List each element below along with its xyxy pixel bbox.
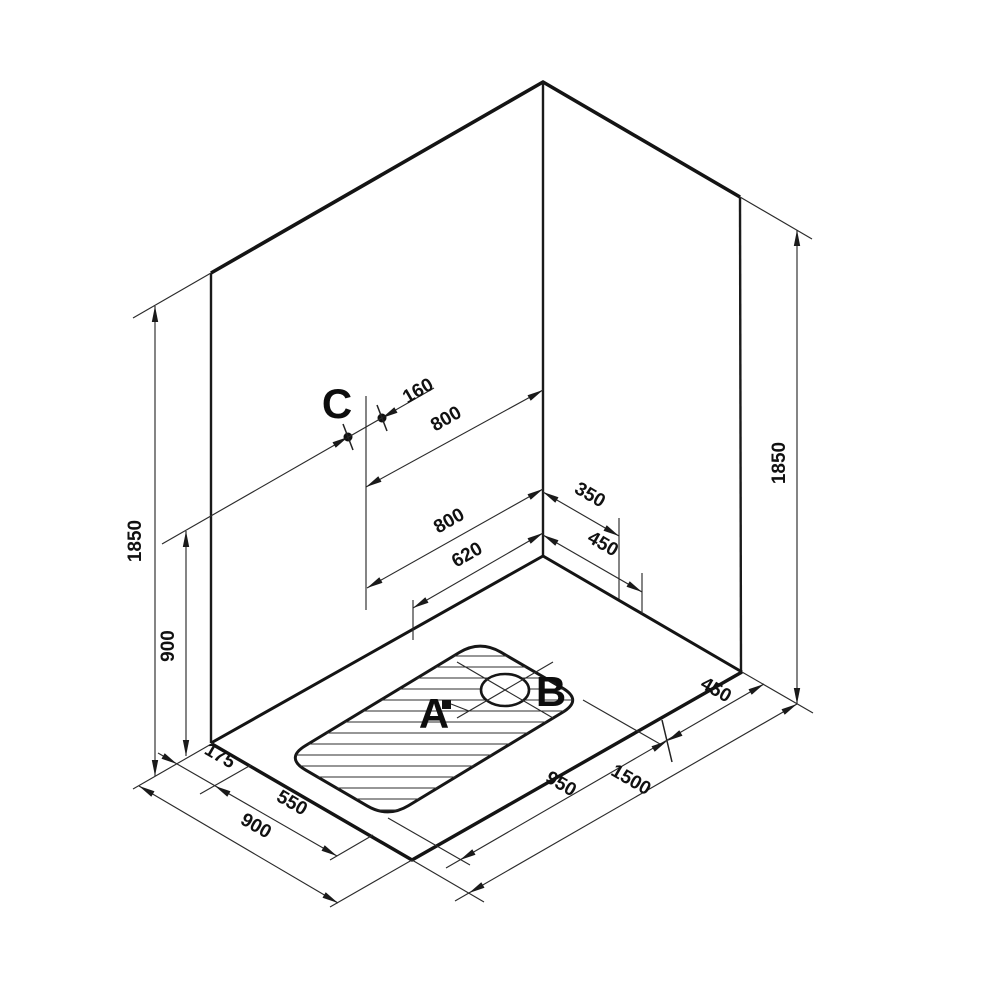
dim-c-offset-upper: 800: [427, 402, 465, 436]
dim-c-offset-lower: 800: [430, 504, 468, 538]
shower-installation-diagram: 1850 900 1850 160 800 800 620 350 450 17…: [0, 0, 990, 990]
label-point-c: C: [322, 380, 352, 427]
dim-wall-right-far: 450: [584, 527, 622, 561]
dim-floor-left-total: 900: [237, 809, 275, 843]
label-point-a: A: [419, 690, 449, 737]
dim-height-right: 1850: [769, 442, 790, 484]
right-wall-right-edge: [740, 197, 741, 671]
dim-floor-right-total: 1500: [607, 761, 654, 800]
wall-top-edges: [211, 82, 740, 273]
dim-height-c: 900: [158, 630, 179, 662]
dim-tray-width: 550: [273, 786, 311, 820]
dim-height-left: 1850: [125, 520, 146, 562]
dimension-arrows: [139, 230, 800, 903]
dim-c-spacing: 160: [399, 374, 437, 408]
technical-drawing-page: 1850 900 1850 160 800 800 620 350 450 17…: [0, 0, 990, 990]
label-point-b: B: [536, 668, 566, 715]
dim-drain-offset: 620: [448, 538, 486, 572]
dim-wall-right-near: 350: [571, 478, 609, 512]
dim-floor-left-margin: 175: [201, 739, 239, 773]
dim-tray-length: 950: [542, 767, 580, 801]
